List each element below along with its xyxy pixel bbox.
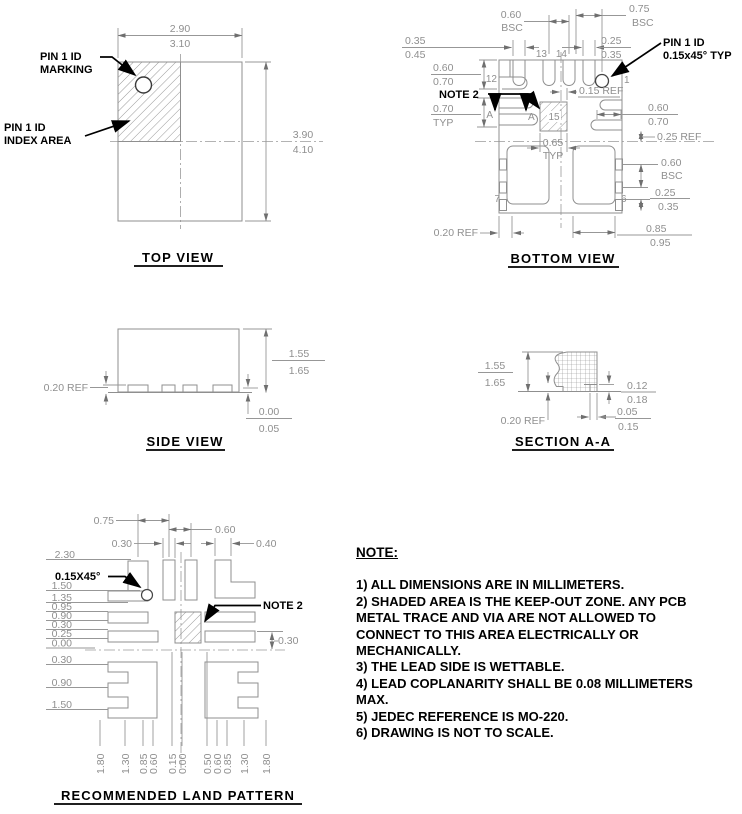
pin-6: 6	[621, 194, 627, 205]
pin1-id-label-1: PIN 1 ID	[663, 37, 705, 49]
dim: 1.65	[485, 377, 506, 389]
dim: 1.30	[239, 753, 251, 774]
chamfer-label: 0.15X45°	[55, 571, 100, 583]
note-item-4: 4) LEAD COPLANARITY SHALL BE 0.08 MILLIM…	[356, 676, 696, 709]
dim: 0.70	[433, 103, 454, 115]
dim: 1.50	[52, 699, 73, 711]
dim: 1.55	[485, 360, 506, 372]
dim: 0.12	[627, 380, 648, 392]
bottom-view-title: BOTTOM VIEW	[510, 251, 615, 266]
dim: 0.40	[256, 538, 277, 550]
land-pattern: 0.75 0.60 0.30 0.40 2.30 1.50 1.35 0.95 …	[46, 514, 303, 804]
dim-width-lower: 3.10	[170, 38, 191, 50]
note-item-1: 1) ALL DIMENSIONS ARE IN MILLIMETERS.	[356, 577, 696, 593]
dim: 0.60	[148, 753, 160, 774]
pin1-index-hatch	[118, 62, 181, 142]
dim: 0.05	[259, 423, 280, 435]
dim: 0.25	[655, 187, 676, 199]
dim: 0.30	[278, 635, 299, 647]
dim: 1.30	[120, 753, 132, 774]
note-item-5: 5) JEDEC REFERENCE IS MO-220.	[356, 709, 696, 725]
pin1-marking-label-2: MARKING	[40, 64, 93, 76]
dim: 0.30	[112, 538, 133, 550]
dim: 0.15	[618, 421, 639, 433]
pin1-marking-circle	[136, 77, 152, 93]
dim: 0.35	[658, 201, 679, 213]
dim: 0.15 REF	[579, 85, 623, 97]
dim: 0.70	[648, 116, 669, 128]
dim: 0.00	[259, 406, 280, 418]
side-view-leads	[128, 385, 232, 392]
dim: 1.80	[95, 753, 107, 774]
section-aa-title: SECTION A-A	[515, 434, 611, 449]
pin1-id-label-2: 0.15x45° TYP	[663, 50, 732, 62]
dim: 0.70	[433, 76, 454, 88]
pin-13: 13	[536, 49, 548, 60]
side-view: 0.20 REF 1.55 1.65 0.00 0.05 SIDE VIEW	[44, 329, 325, 450]
section-aa: 1.55 1.65 0.12 0.18 0.05 0.15 0.20 REF S…	[478, 352, 656, 450]
section-label-a1: A	[486, 110, 493, 121]
dim: 0.35	[405, 35, 426, 47]
dim: BSC	[501, 22, 523, 34]
top-view-title: TOP VIEW	[142, 250, 214, 265]
pin1-index-label-1: PIN 1 ID	[4, 122, 46, 134]
dim-height-upper: 3.90	[293, 129, 314, 141]
bottom-view: A A 0.60 BSC 0.75 BSC 0.35 0.45 0.25 0.3…	[402, 3, 732, 267]
dim: 0.45	[405, 49, 426, 61]
pin1-marking-label-1: PIN 1 ID	[40, 51, 82, 63]
dim: 0.25 REF	[657, 131, 701, 143]
dim: BSC	[632, 17, 654, 29]
dim: 0.75	[629, 3, 650, 15]
dim: 0.60	[648, 102, 669, 114]
dim: 0.05	[617, 406, 638, 418]
side-view-title: SIDE VIEW	[146, 434, 223, 449]
dim: TYP	[433, 117, 453, 129]
dim: 2.30	[55, 549, 76, 561]
notes-section: NOTE: 1) ALL DIMENSIONS ARE IN MILLIMETE…	[356, 545, 696, 741]
note2-label: NOTE 2	[439, 89, 479, 101]
lead-section-shape	[554, 352, 597, 392]
note-item-3: 3) THE LEAD SIDE IS WETTABLE.	[356, 659, 696, 675]
pin-15: 15	[548, 112, 560, 123]
pin-14: 14	[556, 49, 568, 60]
dim: 0.35	[601, 49, 622, 61]
dim-height-lower: 4.10	[293, 144, 314, 156]
pin1-index-label-2: INDEX AREA	[4, 135, 71, 147]
dim: 0.95	[650, 237, 671, 249]
dim: 0.60	[501, 9, 522, 21]
note-item-6: 6) DRAWING IS NOT TO SCALE.	[356, 725, 696, 741]
dim: 1.80	[261, 753, 273, 774]
dim: 0.25	[601, 35, 622, 47]
dim: 0.60	[215, 524, 236, 536]
dim: 0.85	[646, 223, 667, 235]
dim: 0.60	[433, 62, 454, 74]
note-item-2: 2) SHADED AREA IS THE KEEP-OUT ZONE. ANY…	[356, 594, 696, 660]
pin-12: 12	[486, 74, 498, 85]
land-pin1-chamfer-circle	[142, 590, 153, 601]
dim: 0.00	[177, 753, 189, 774]
dim: 0.90	[52, 677, 73, 689]
dim: 0.00	[52, 638, 73, 650]
dim: TYP	[543, 150, 563, 162]
package-drawing-page: 2.90 3.10 3.90 4.10 PIN 1 ID MARKING PIN…	[0, 0, 742, 814]
dim: 0.20 REF	[44, 382, 88, 394]
dim: 0.30	[52, 654, 73, 666]
dim: 1.65	[289, 365, 310, 377]
dim: 0.85	[222, 753, 234, 774]
dim: 0.60	[661, 157, 682, 169]
dim: 0.20 REF	[434, 227, 478, 239]
pin-7: 7	[494, 194, 500, 205]
notes-heading: NOTE:	[356, 545, 696, 561]
top-view: 2.90 3.10 3.90 4.10 PIN 1 ID MARKING PIN…	[4, 23, 323, 266]
dim: 0.75	[94, 515, 115, 527]
land-note2-label: NOTE 2	[263, 600, 303, 612]
land-pattern-title: RECOMMENDED LAND PATTERN	[61, 788, 295, 803]
dim: 0.20 REF	[501, 415, 545, 427]
dim: 0.65	[543, 137, 564, 149]
dim-width-upper: 2.90	[170, 23, 191, 35]
section-label-a2: A	[528, 112, 535, 123]
land-keepout-hatch	[175, 612, 201, 643]
dim: 0.18	[627, 394, 648, 406]
dim: BSC	[661, 170, 683, 182]
dim: 1.55	[289, 348, 310, 360]
pin-1: 1	[624, 75, 630, 86]
